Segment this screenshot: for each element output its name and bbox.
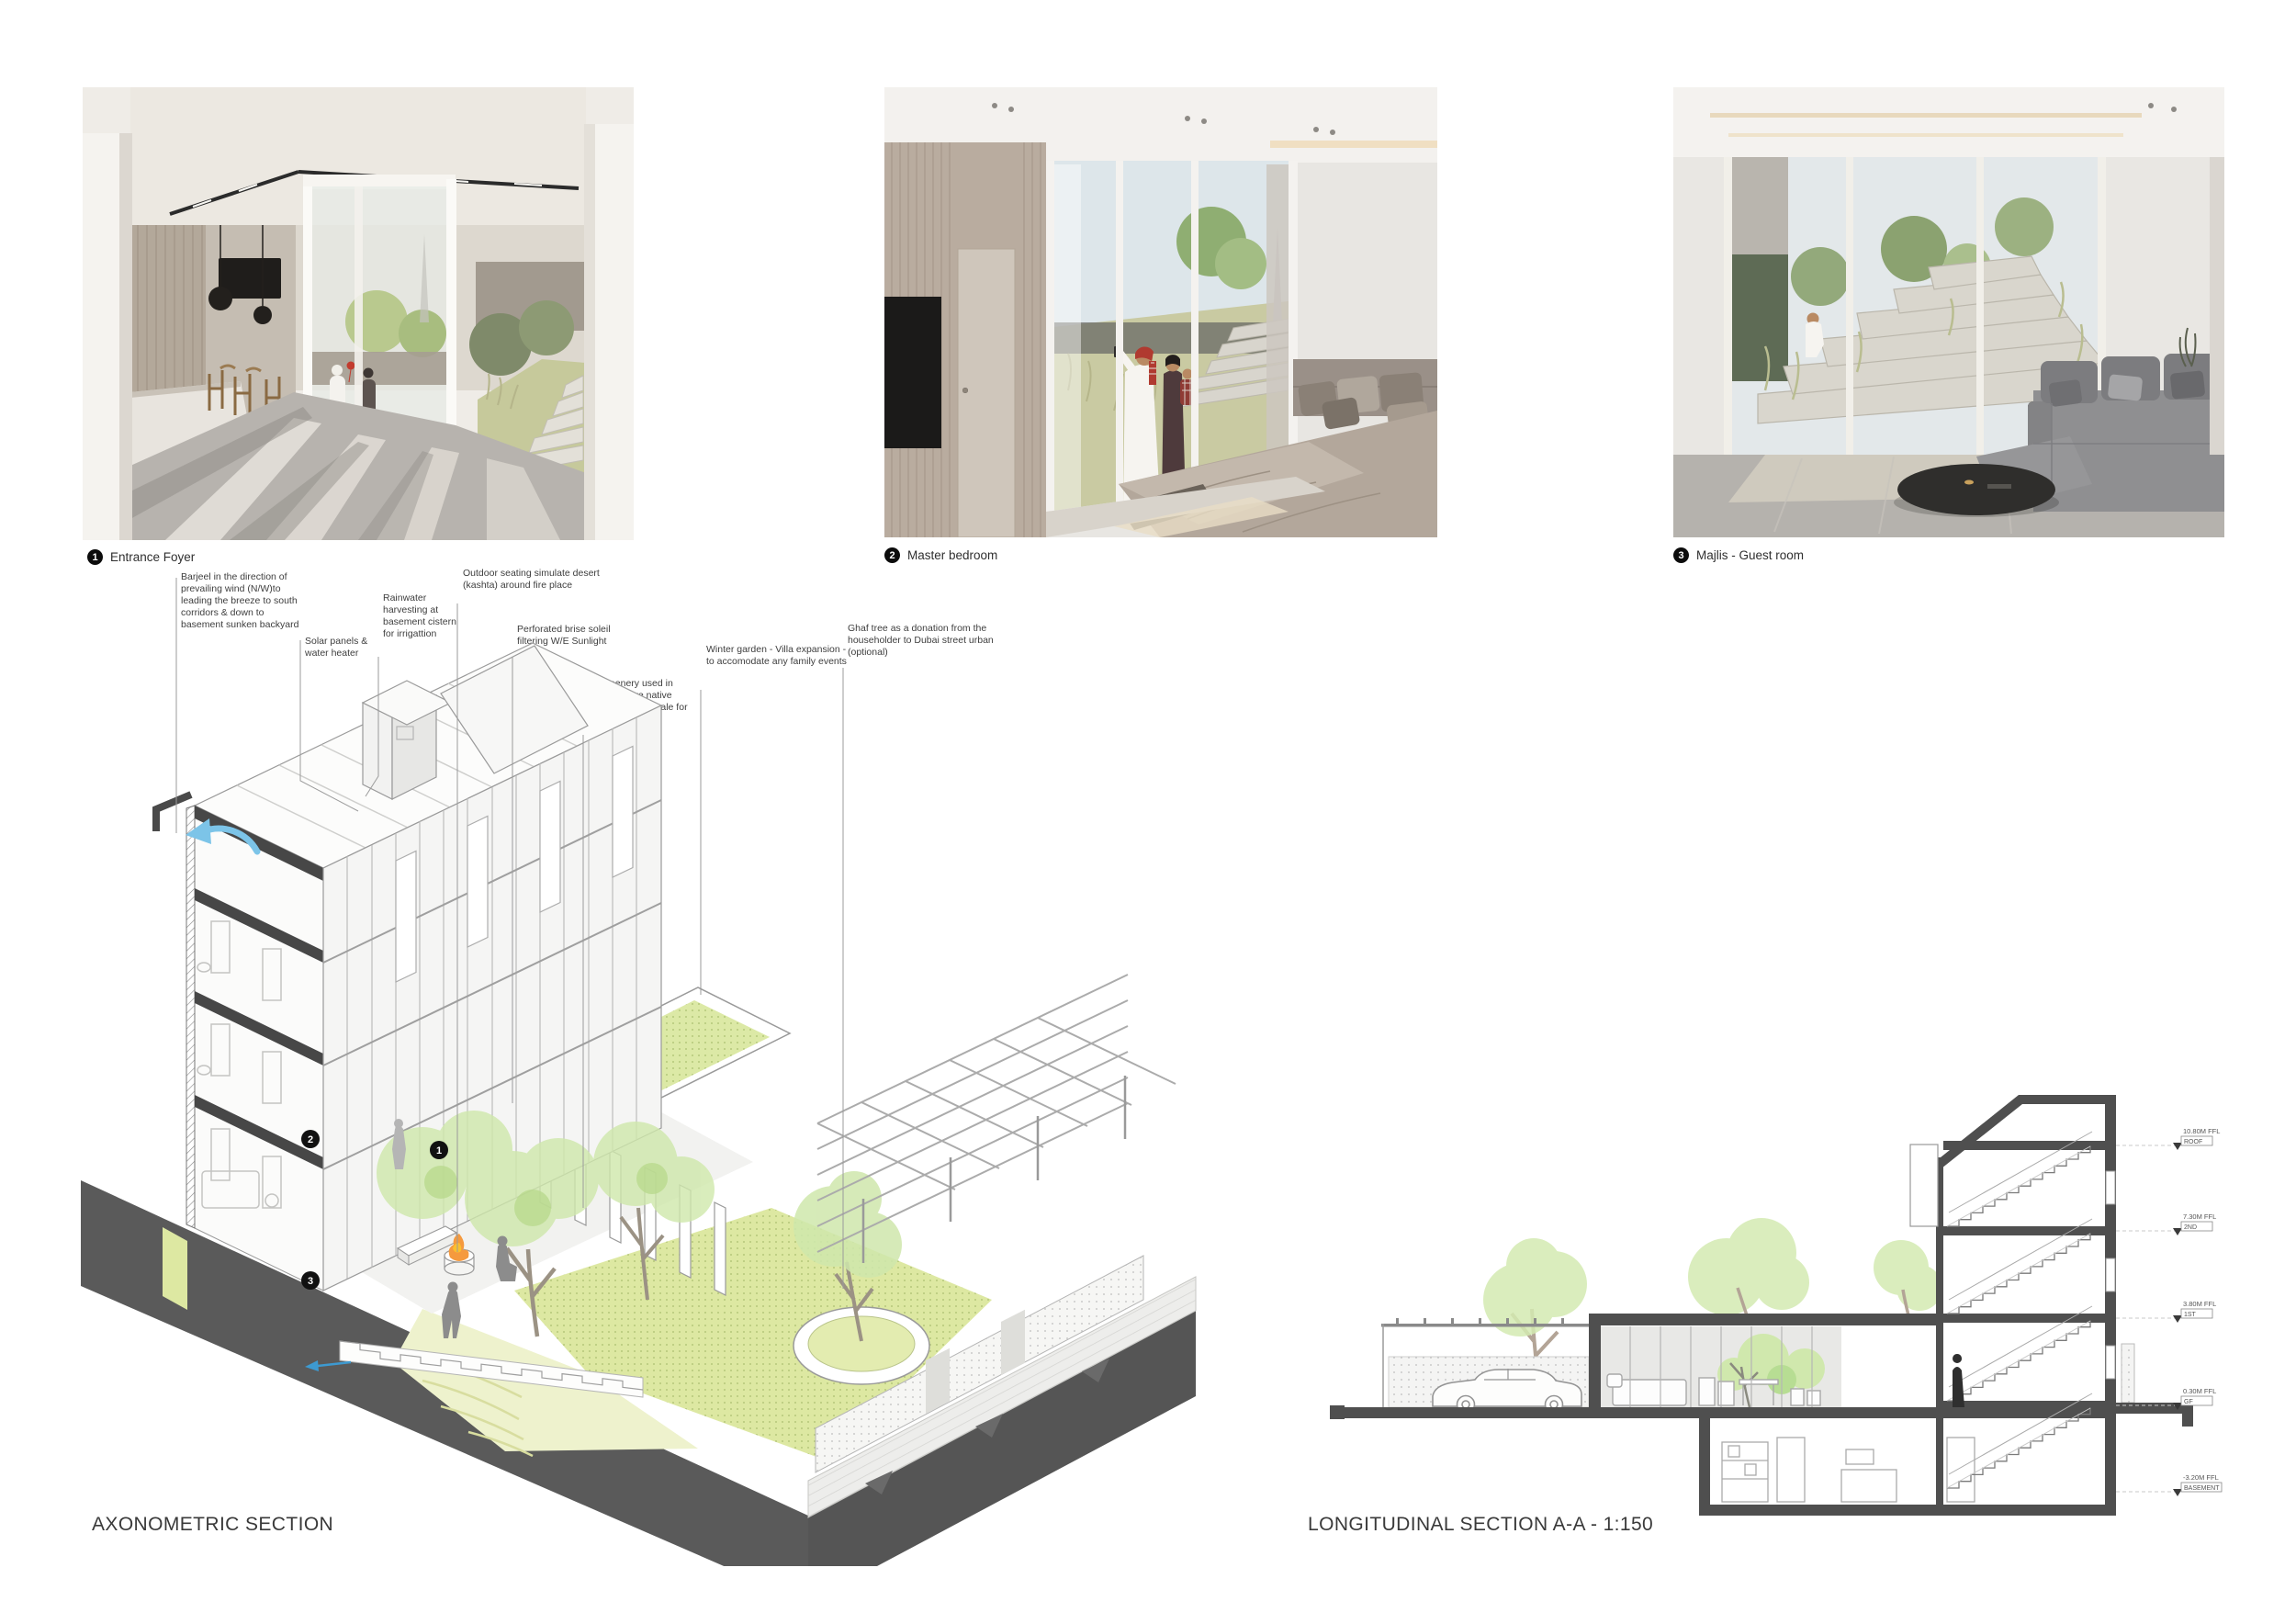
caption-label: Master bedroom xyxy=(907,548,997,562)
axon-marker-3: 3 xyxy=(301,1271,320,1290)
svg-text:7.30M FFL: 7.30M FFL xyxy=(2183,1212,2216,1221)
svg-text:10.80M FFL: 10.80M FFL xyxy=(2183,1127,2220,1135)
svg-text:3: 3 xyxy=(308,1276,313,1287)
carport xyxy=(1381,1318,1593,1414)
entrance-foyer-render xyxy=(83,87,634,540)
level-marker-2nd: 7.30M FFL 2ND xyxy=(2116,1212,2216,1235)
svg-text:BASEMENT: BASEMENT xyxy=(2184,1485,2220,1492)
caption-label: Majlis - Guest room xyxy=(1696,548,1804,562)
level-marker-1st: 3.80M FFL 1ST xyxy=(2116,1300,2216,1323)
level-markers: 10.80M FFL ROOF 7.30M FFL 2ND 3.80M FFL … xyxy=(2116,1127,2222,1496)
axonometric-title: AXONOMETRIC SECTION xyxy=(92,1514,333,1536)
caption-majlis: 3 Majlis - Guest room xyxy=(1673,547,1804,563)
barjeel-cut-cap xyxy=(156,795,191,831)
caption-entrance-foyer: 1 Entrance Foyer xyxy=(87,549,195,565)
ground-floor-volume xyxy=(1589,1314,1940,1407)
longitudinal-title: LONGITUDINAL SECTION A-A - 1:150 xyxy=(1308,1514,1653,1536)
axon-marker-2: 2 xyxy=(301,1130,320,1148)
photo-master-bedroom xyxy=(884,87,1437,537)
gf-roof-slab xyxy=(1589,1314,1940,1325)
svg-text:3.80M FFL: 3.80M FFL xyxy=(2183,1300,2216,1308)
figure-silhouette xyxy=(1953,1354,1964,1407)
section-cut-face xyxy=(186,806,323,1291)
caption-label: Entrance Foyer xyxy=(110,550,195,564)
majlis-render xyxy=(1673,87,2224,537)
level-marker-roof: 10.80M FFL ROOF xyxy=(2116,1127,2220,1150)
svg-text:GF: GF xyxy=(2184,1399,2193,1405)
photo-majlis-guest-room xyxy=(1673,87,2224,537)
caption-number-badge: 2 xyxy=(884,547,900,563)
red-balloon xyxy=(347,362,355,370)
caption-master-bedroom: 2 Master bedroom xyxy=(884,547,997,563)
bedroom-door xyxy=(958,249,1015,537)
master-bedroom-render xyxy=(884,87,1437,537)
presentation-board: 1 Entrance Foyer 2 Master bedroom 3 Majl… xyxy=(0,0,2296,1624)
photo-entrance-foyer xyxy=(83,87,634,540)
svg-text:2: 2 xyxy=(308,1134,313,1145)
right-ground-stub xyxy=(2116,1344,2193,1427)
tower-side-wall xyxy=(1910,1145,1938,1226)
caption-number-badge: 1 xyxy=(87,549,103,565)
svg-text:1: 1 xyxy=(436,1145,442,1156)
cove-light xyxy=(1270,141,1437,148)
hedge-wall xyxy=(1724,254,1788,381)
axon-marker-1: 1 xyxy=(430,1141,448,1159)
svg-text:2ND: 2ND xyxy=(2184,1224,2197,1231)
svg-text:0.30M FFL: 0.30M FFL xyxy=(2183,1387,2216,1395)
level-marker-basement: -3.20M FFL BASEMENT xyxy=(2116,1473,2222,1496)
svg-text:1ST: 1ST xyxy=(2184,1312,2197,1318)
caption-number-badge: 3 xyxy=(1673,547,1689,563)
tv-screen xyxy=(884,297,941,448)
axonometric-section-drawing: 1 2 3 xyxy=(73,565,1203,1566)
svg-text:-3.20M FFL: -3.20M FFL xyxy=(2183,1473,2219,1482)
svg-text:ROOF: ROOF xyxy=(2184,1139,2202,1145)
longitudinal-section-drawing: 10.80M FFL ROOF 7.30M FFL 2ND 3.80M FFL … xyxy=(1304,1084,2296,1562)
